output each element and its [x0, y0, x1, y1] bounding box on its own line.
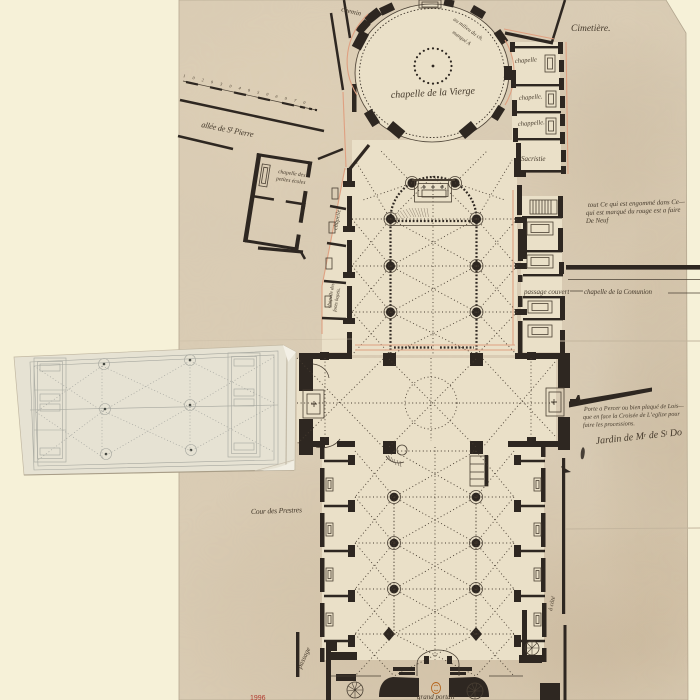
svg-text:passage couvert: passage couvert — [523, 288, 570, 296]
svg-text:Cour des Prestres: Cour des Prestres — [251, 505, 302, 516]
svg-text:Cimetière.: Cimetière. — [571, 24, 610, 34]
svg-text:1996: 1996 — [250, 695, 266, 700]
svg-text:De Neuf: De Neuf — [585, 217, 610, 225]
svg-text:grand portail: grand portail — [417, 693, 455, 700]
svg-text:chapelle de la Comunion: chapelle de la Comunion — [584, 288, 652, 296]
svg-text:A: A — [574, 394, 581, 404]
svg-text:Sacristie: Sacristie — [521, 155, 546, 163]
